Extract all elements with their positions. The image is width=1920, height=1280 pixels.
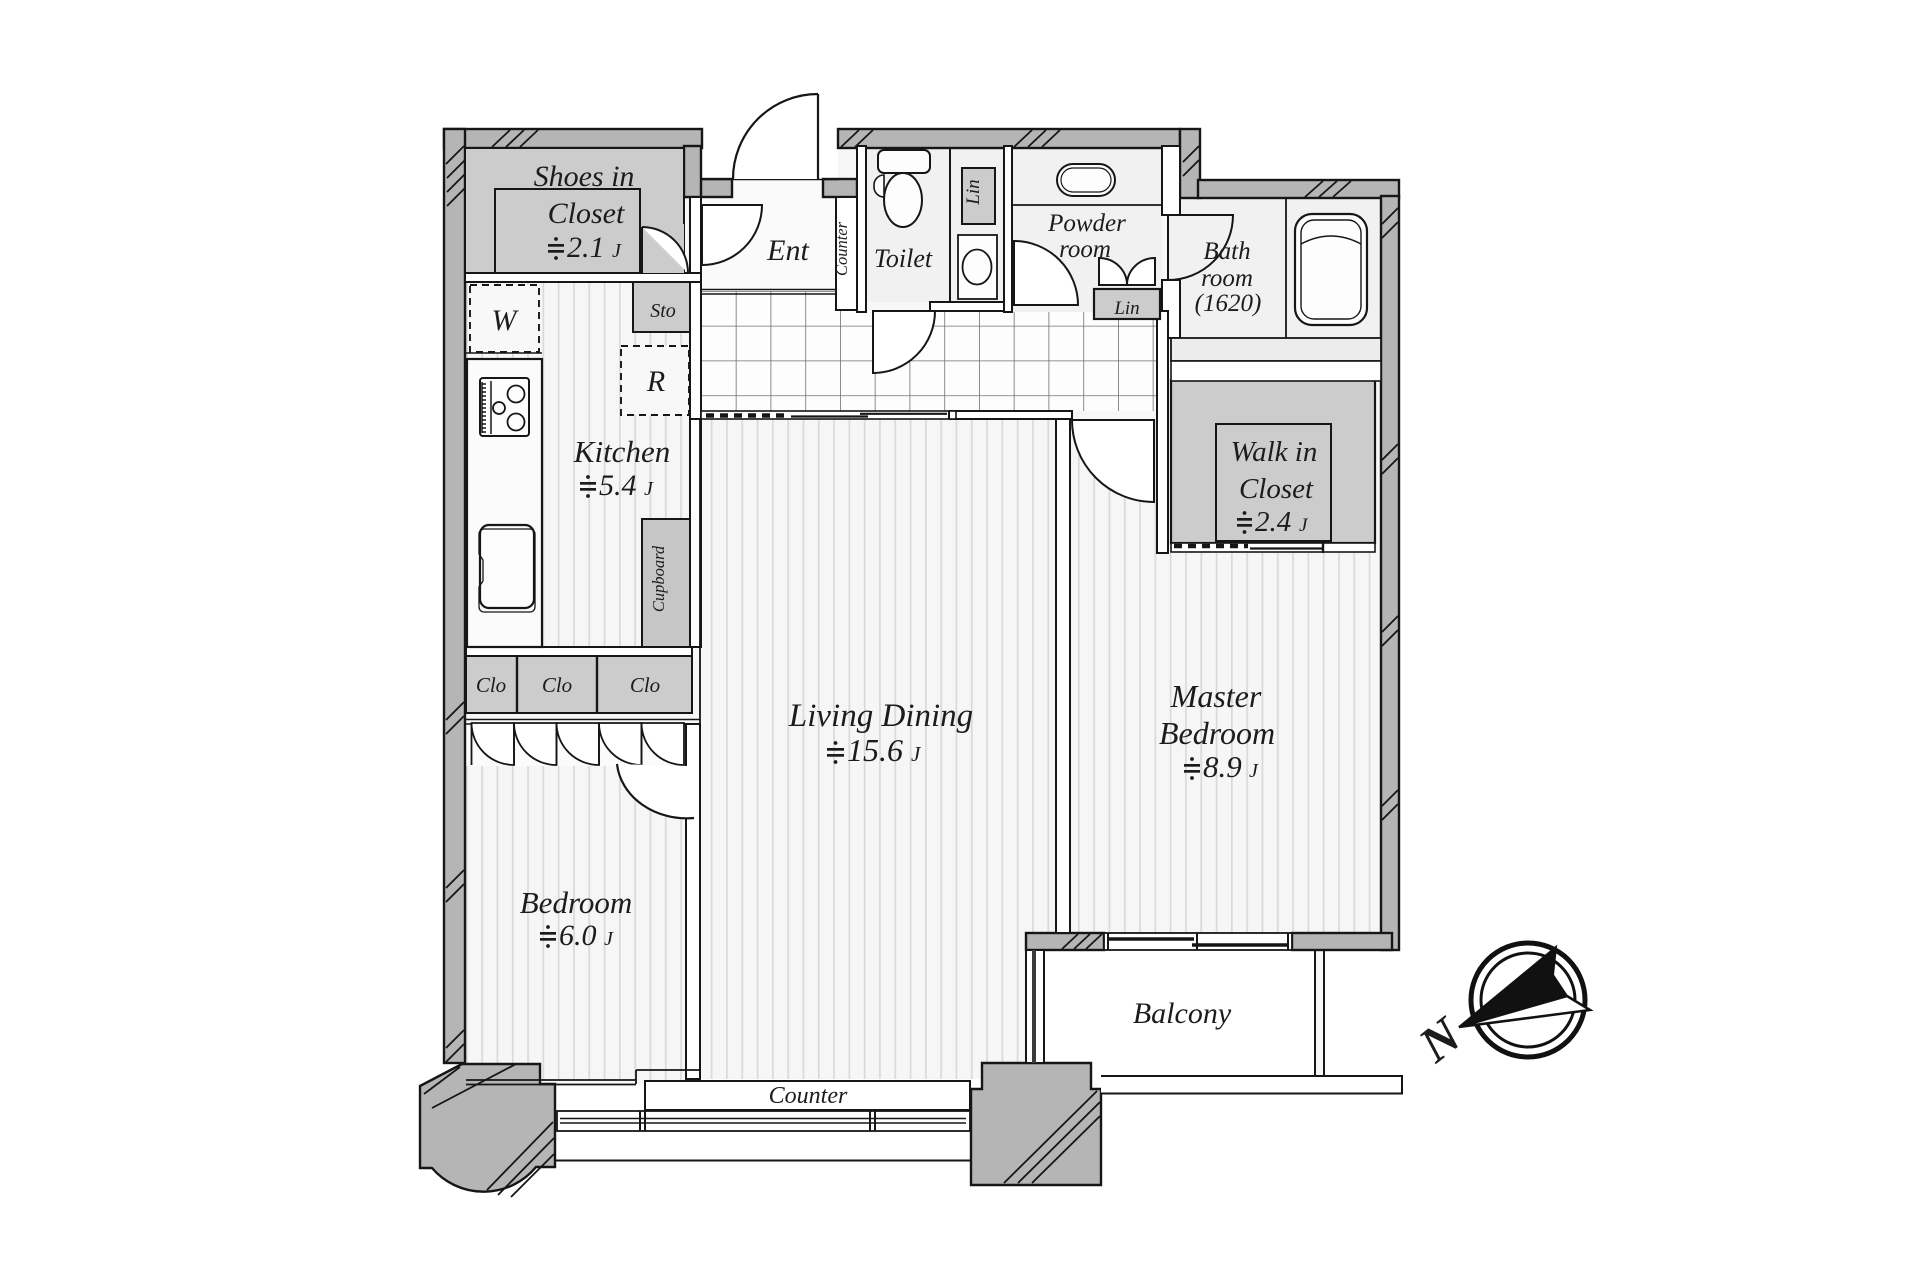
svg-text:2.4: 2.4 <box>1255 506 1291 538</box>
svg-text:Counter: Counter <box>832 221 851 276</box>
svg-text:Counter: Counter <box>769 1083 848 1109</box>
svg-text:Clo: Clo <box>476 673 506 697</box>
svg-text:Walk in: Walk in <box>1231 436 1318 468</box>
svg-text:J: J <box>1249 760 1259 782</box>
svg-text:Living Dining: Living Dining <box>788 698 973 734</box>
svg-text:8.9: 8.9 <box>1203 749 1242 784</box>
svg-text:Bedroom: Bedroom <box>1159 715 1275 751</box>
svg-text:Lin: Lin <box>1113 298 1139 319</box>
svg-text:15.6: 15.6 <box>847 732 903 768</box>
svg-text:Powder: Powder <box>1047 210 1126 237</box>
svg-text:5.4: 5.4 <box>599 469 637 502</box>
svg-text:Clo: Clo <box>630 673 660 697</box>
svg-text:room: room <box>1059 236 1111 263</box>
svg-text:W: W <box>492 304 520 337</box>
svg-text:Master: Master <box>1170 678 1262 714</box>
svg-text:6.0: 6.0 <box>559 919 597 952</box>
svg-text:(1620): (1620) <box>1195 290 1262 317</box>
svg-text:Sto: Sto <box>650 300 676 322</box>
svg-text:Bedroom: Bedroom <box>520 885 633 920</box>
svg-text:Kitchen: Kitchen <box>573 434 670 469</box>
svg-text:Shoes in: Shoes in <box>534 160 635 193</box>
svg-text:J: J <box>604 928 614 950</box>
svg-text:R: R <box>646 365 665 398</box>
svg-text:Closet: Closet <box>548 197 625 230</box>
svg-text:J: J <box>644 478 654 500</box>
svg-text:J: J <box>612 240 622 262</box>
svg-text:Clo: Clo <box>542 673 572 697</box>
svg-text:room: room <box>1201 265 1253 292</box>
svg-text:Bath: Bath <box>1203 238 1250 265</box>
svg-text:Ent: Ent <box>766 234 809 267</box>
svg-text:Lin: Lin <box>963 179 984 205</box>
svg-text:2.1: 2.1 <box>567 231 605 264</box>
svg-text:N: N <box>1408 1005 1473 1073</box>
svg-text:Toilet: Toilet <box>874 244 933 273</box>
svg-text:Balcony: Balcony <box>1133 997 1232 1030</box>
svg-text:Cupboard: Cupboard <box>649 545 668 612</box>
svg-text:Closet: Closet <box>1239 473 1314 505</box>
